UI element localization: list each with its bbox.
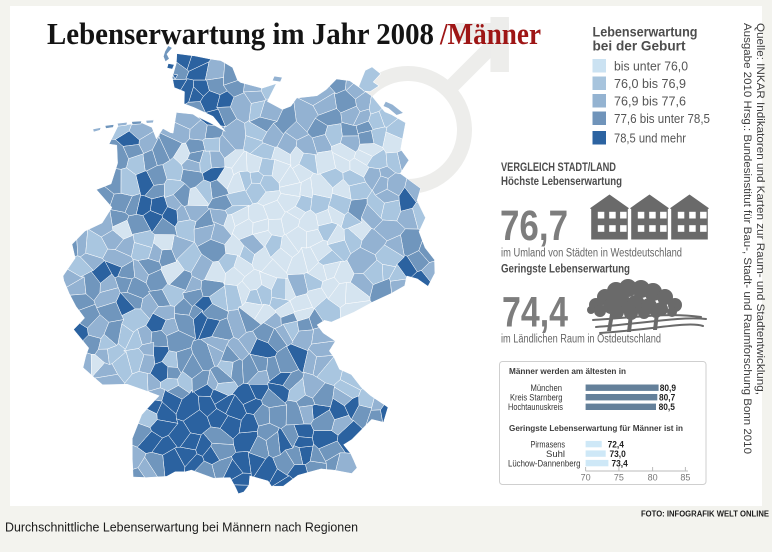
svg-text:77,6 bis unter 78,5: 77,6 bis unter 78,5 (614, 112, 710, 126)
svg-text:80: 80 (648, 473, 658, 483)
svg-text:80,5: 80,5 (659, 402, 676, 413)
svg-text:VERGLEICH STADT/LAND: VERGLEICH STADT/LAND (501, 162, 616, 174)
svg-text:bis unter 76,0: bis unter 76,0 (614, 60, 688, 74)
svg-text:85: 85 (680, 473, 690, 483)
svg-text:78,5 und mehr: 78,5 und mehr (614, 132, 686, 146)
svg-text:Durchschnittliche Lebenserwart: Durchschnittliche Lebenserwartung bei Mä… (5, 520, 358, 535)
svg-text:im Ländlichen Raum in Ostdeuts: im Ländlichen Raum in Ostdeutschland (501, 334, 661, 346)
svg-text:bei der Geburt: bei der Geburt (593, 39, 687, 54)
svg-text:74,4: 74,4 (502, 290, 568, 337)
svg-text:Ausgabe 2010 Hrsg.: Bundesinst: Ausgabe 2010 Hrsg.: Bundesinstitut für B… (741, 23, 753, 454)
svg-text:Männer werden am ältesten in: Männer werden am ältesten in (509, 366, 626, 376)
svg-text:70: 70 (581, 473, 591, 483)
svg-text:Quelle: INKAR Indikatoren und: Quelle: INKAR Indikatoren und Karten zur… (754, 23, 766, 395)
svg-text:Lebenserwartung: Lebenserwartung (593, 25, 698, 40)
svg-text:FOTO: INFOGRAFIK WELT ONLINE: FOTO: INFOGRAFIK WELT ONLINE (641, 510, 770, 519)
svg-text:im Umland von Städten in Westd: im Umland von Städten in Westdeutschland (501, 248, 682, 260)
svg-text:Geringste Lebenserwartung: Geringste Lebenserwartung (501, 262, 630, 276)
svg-text:Lebenserwartung im Jahr 2008: Lebenserwartung im Jahr 2008 (47, 17, 434, 51)
svg-text:76,9 bis 77,6: 76,9 bis 77,6 (614, 95, 686, 109)
svg-text:76,0 bis 76,9: 76,0 bis 76,9 (614, 77, 686, 91)
svg-text:75: 75 (614, 473, 624, 483)
svg-text:Lüchow-Dannenberg: Lüchow-Dannenberg (508, 459, 581, 470)
svg-text:Höchste Lebenserwartung: Höchste Lebenserwartung (501, 174, 622, 188)
svg-text:/Männer: /Männer (439, 17, 541, 51)
svg-text:73,4: 73,4 (612, 459, 629, 470)
svg-text:Hochtaunuskreis: Hochtaunuskreis (508, 402, 563, 413)
svg-text:Geringste Lebenserwartung für: Geringste Lebenserwartung für Männer ist… (509, 423, 683, 433)
svg-text:76,7: 76,7 (500, 203, 568, 250)
